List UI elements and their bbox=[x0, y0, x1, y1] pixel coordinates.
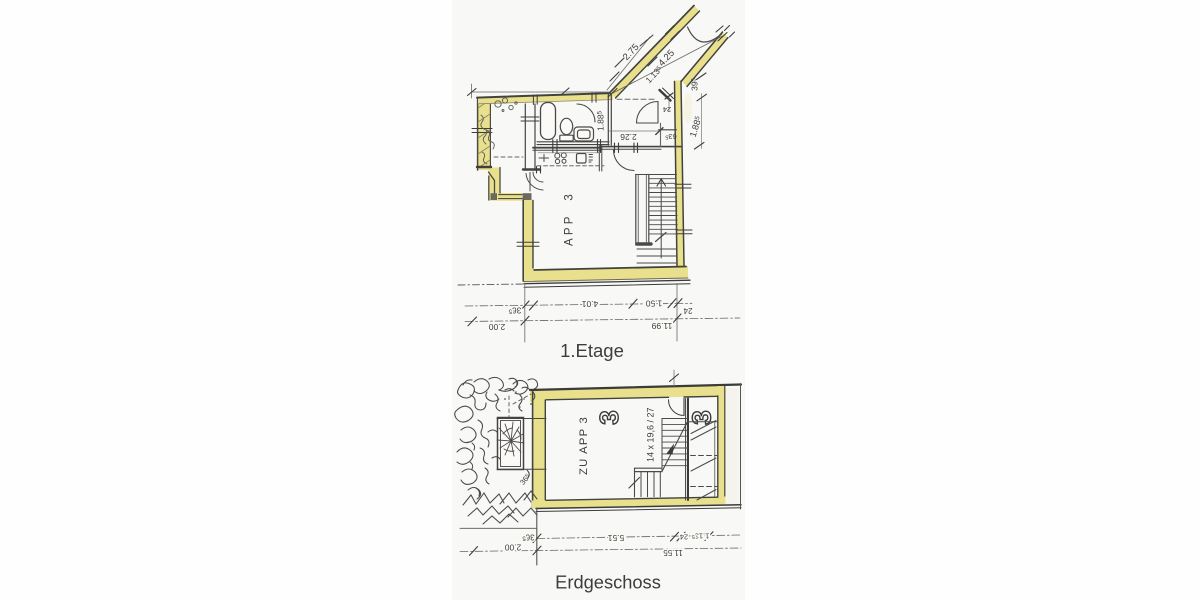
svg-text:4.01: 4.01 bbox=[581, 299, 598, 309]
svg-text:1.Etage: 1.Etage bbox=[560, 340, 624, 361]
svg-text:2.00: 2.00 bbox=[504, 543, 521, 553]
svg-text:2.26: 2.26 bbox=[620, 132, 637, 142]
svg-text:24: 24 bbox=[683, 306, 692, 315]
svg-text:Erdgeschoss: Erdgeschoss bbox=[555, 572, 661, 593]
svg-text:5.51: 5.51 bbox=[607, 533, 624, 543]
svg-text:24: 24 bbox=[680, 532, 688, 541]
svg-text:2.00: 2.00 bbox=[488, 322, 505, 332]
svg-text:11.55: 11.55 bbox=[663, 548, 683, 557]
svg-text:ZU APP 3: ZU APP 3 bbox=[578, 416, 590, 475]
svg-text:APP 3: APP 3 bbox=[564, 191, 576, 246]
svg-text:11.99: 11.99 bbox=[651, 321, 672, 331]
svg-text:3: 3 bbox=[594, 410, 624, 424]
svg-text:1.50: 1.50 bbox=[645, 298, 662, 308]
svg-text:24: 24 bbox=[663, 105, 671, 114]
svg-text:14 x 19,6 / 27: 14 x 19,6 / 27 bbox=[646, 407, 656, 462]
